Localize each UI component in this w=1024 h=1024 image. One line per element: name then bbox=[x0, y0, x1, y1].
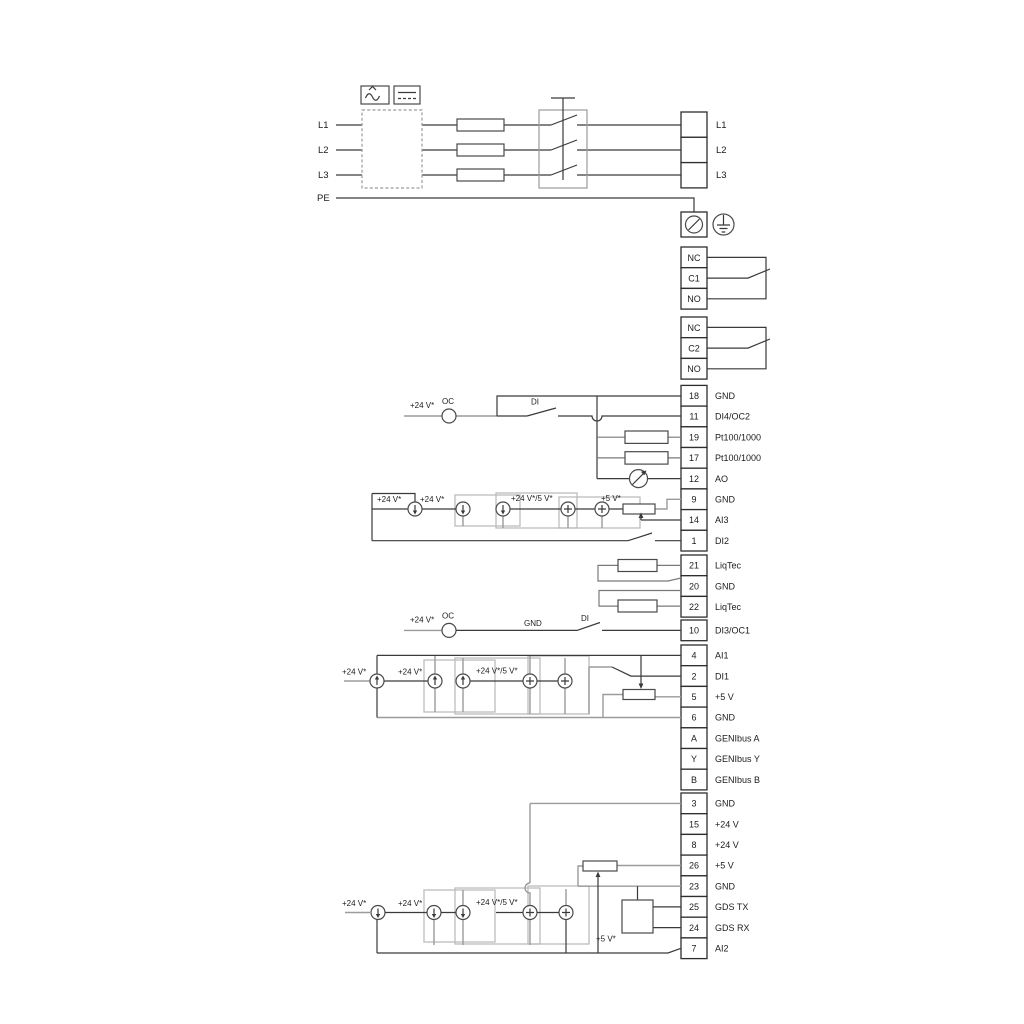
terminal-8-no: 8 bbox=[691, 840, 696, 850]
terminal-26-label: +5 V bbox=[715, 861, 734, 871]
terminal-10-no: 10 bbox=[689, 626, 699, 636]
oc-annotation: OC bbox=[442, 397, 454, 406]
terminal-4-no: 4 bbox=[691, 651, 696, 661]
terminal-21-no: 21 bbox=[689, 561, 699, 571]
terminal-7-label: AI2 bbox=[715, 944, 729, 954]
terminal-23-no: 23 bbox=[689, 881, 699, 891]
terminal-18-no: 18 bbox=[689, 391, 699, 401]
gnd-annotation: GND bbox=[524, 619, 542, 628]
terminal-20-no: 20 bbox=[689, 581, 699, 591]
group-stub-wires bbox=[344, 655, 681, 717]
terminal-7-no: 7 bbox=[691, 944, 696, 954]
ai2-source-group: +24 V* +24 V* +24 V*/5 V* +5 V* bbox=[342, 803, 681, 953]
v24v5-annotation: +24 V*/5 V* bbox=[511, 494, 553, 503]
v24-annotation: +24 V* bbox=[377, 495, 401, 504]
terminal-15-label: +24 V bbox=[715, 819, 739, 829]
terminal-a-label: GENIbus A bbox=[715, 733, 760, 743]
potentiometer-icon bbox=[623, 504, 655, 514]
relay2-contact-wiring bbox=[707, 327, 770, 368]
fuse-icon bbox=[457, 169, 504, 181]
di-annotation: DI bbox=[531, 398, 539, 407]
terminal-4-label: AI1 bbox=[715, 651, 729, 661]
terminal-strip-2: 21 20 22 LiqTec GND LiqTec bbox=[598, 555, 742, 617]
v24-annotation: +24 V* bbox=[398, 899, 422, 908]
terminal-11-no: 11 bbox=[689, 412, 698, 422]
terminal-22-label: LiqTec bbox=[715, 602, 742, 612]
terminal-l3 bbox=[681, 163, 707, 188]
wiring-diagram: L1 L2 L3 PE L1 L2 L3 bbox=[0, 0, 1024, 1024]
mains-in-l1-label: L1 bbox=[318, 120, 329, 131]
v5-annotation: +5 V* bbox=[596, 935, 616, 944]
option-frame bbox=[528, 656, 589, 714]
di3-wiring: +24 V* OC GND DI bbox=[404, 612, 681, 638]
pt100-resistor-icon bbox=[625, 431, 668, 443]
fuses bbox=[457, 119, 504, 181]
terminal-3-label: GND bbox=[715, 799, 736, 809]
main-switch-blades bbox=[551, 115, 577, 175]
terminal-3-no: 3 bbox=[691, 799, 696, 809]
oc-annotation: OC bbox=[442, 612, 454, 621]
v24-annotation: +24 V* bbox=[410, 616, 434, 625]
potentiometer-icon bbox=[583, 861, 617, 871]
terminal-a-no: A bbox=[691, 733, 697, 743]
terminal-25-label: GDS TX bbox=[715, 902, 748, 912]
terminal-strip-3: 10 4 2 5 6 A Y B DI3/OC1 AI1 DI1 +5 V GN… bbox=[681, 620, 760, 790]
open-collector-icon bbox=[442, 409, 456, 423]
relay2-block: NC C2 NO bbox=[681, 317, 770, 379]
mains-output-block: L1 L2 L3 bbox=[681, 112, 727, 188]
terminal-11-label: DI4/OC2 bbox=[715, 412, 750, 422]
terminal-15-no: 15 bbox=[689, 819, 699, 829]
terminal-5-no: 5 bbox=[691, 692, 696, 702]
relay1-no-label: NO bbox=[687, 294, 701, 304]
liqtec-resistor-icon bbox=[618, 560, 657, 572]
terminal-14-label: AI3 bbox=[715, 515, 729, 525]
terminal-strip-1: 18 11 19 17 12 9 14 1 GND DI4/OC2 Pt100/… bbox=[681, 385, 761, 551]
terminal-1-label: DI2 bbox=[715, 536, 729, 546]
v24-annotation: +24 V* bbox=[410, 401, 434, 410]
terminal-b-label: GENIbus B bbox=[715, 775, 760, 785]
terminal-l1 bbox=[681, 112, 707, 137]
terminal-26-no: 26 bbox=[689, 861, 699, 871]
terminal-12-label: AO bbox=[715, 474, 728, 484]
terminal-19-label: Pt100/1000 bbox=[715, 432, 761, 442]
terminal-9-no: 9 bbox=[691, 495, 696, 505]
terminal-2-label: DI1 bbox=[715, 671, 729, 681]
terminal-17-no: 17 bbox=[689, 453, 699, 463]
terminal-6-no: 6 bbox=[691, 713, 696, 723]
di3-switch-wire bbox=[456, 623, 681, 631]
pot-wiper-arrowhead bbox=[639, 684, 644, 690]
terminal-5-label: +5 V bbox=[715, 692, 734, 702]
pe-terminal bbox=[681, 212, 707, 237]
v24-annotation: +24 V* bbox=[398, 668, 422, 677]
dc-symbol-box bbox=[394, 86, 420, 104]
wiring-diagram-page: L1 L2 L3 PE L1 L2 L3 bbox=[0, 0, 1024, 1024]
mains-out-l1-label: L1 bbox=[716, 120, 727, 131]
frequency-converter-box bbox=[362, 110, 422, 188]
mains-input-section: L1 L2 L3 PE L1 L2 L3 bbox=[317, 86, 734, 237]
open-collector-icon bbox=[442, 623, 456, 637]
v24-annotation: +24 V* bbox=[342, 899, 366, 908]
relay2-nc-label: NC bbox=[688, 323, 701, 333]
v5-annotation: +5 V* bbox=[601, 494, 621, 503]
relay2-c2-label: C2 bbox=[688, 344, 700, 354]
relay1-nc-label: NC bbox=[688, 253, 701, 263]
mains-out-l2-label: L2 bbox=[716, 145, 727, 156]
fuse-icon bbox=[457, 144, 504, 156]
terminal-6-label: GND bbox=[715, 713, 736, 723]
terminal-23-label: GND bbox=[715, 881, 736, 891]
terminal-9-label: GND bbox=[715, 495, 736, 505]
potentiometer-icon bbox=[623, 690, 655, 700]
relay1-contact-wiring bbox=[707, 257, 770, 298]
pt100-resistor-icon bbox=[625, 452, 668, 464]
ai3-source-group: +24 V* +24 V* +24 V*/5 V* +5 V* bbox=[372, 493, 681, 541]
terminal-b-no: B bbox=[691, 775, 697, 785]
mains-in-l2-label: L2 bbox=[318, 145, 329, 156]
terminal-24-label: GDS RX bbox=[715, 923, 750, 933]
terminal-24-no: 24 bbox=[689, 923, 699, 933]
terminal-10-label: DI3/OC1 bbox=[715, 626, 750, 636]
liqtec-resistor-icon bbox=[618, 600, 657, 612]
terminal-strip-4: 3 15 8 26 23 25 24 7 GND +24 V +24 V +5 … bbox=[681, 793, 750, 959]
v24-annotation: +24 V* bbox=[342, 668, 366, 677]
mains-in-l3-label: L3 bbox=[318, 170, 329, 181]
pot-wiper-arrowhead bbox=[596, 872, 601, 878]
terminal-22-no: 22 bbox=[689, 602, 699, 612]
earth-symbol bbox=[713, 214, 734, 235]
relay2-no-label: NO bbox=[687, 364, 701, 374]
terminal-8-label: +24 V bbox=[715, 840, 739, 850]
relay1-c1-label: C1 bbox=[688, 274, 700, 284]
terminal-14-no: 14 bbox=[689, 515, 699, 525]
v24v5-annotation: +24 V*/5 V* bbox=[476, 898, 518, 907]
terminal-y-no: Y bbox=[691, 754, 697, 764]
v24-annotation: +24 V* bbox=[420, 495, 444, 504]
terminal-18-label: GND bbox=[715, 391, 736, 401]
terminal-y-label: GENIbus Y bbox=[715, 754, 760, 764]
gds-sensor-box bbox=[622, 900, 653, 933]
v24v5-annotation: +24 V*/5 V* bbox=[476, 667, 518, 676]
mains-in-pe-label: PE bbox=[317, 193, 330, 204]
ai1-source-group: +24 V* +24 V* +24 V*/5 V* bbox=[342, 655, 681, 717]
terminal-19-no: 19 bbox=[689, 432, 699, 442]
terminal-20-label: GND bbox=[715, 581, 736, 591]
di-annotation: DI bbox=[581, 614, 589, 623]
relay1-block: NC C1 NO bbox=[681, 247, 770, 309]
terminal-2-no: 2 bbox=[691, 671, 696, 681]
mains-out-l3-label: L3 bbox=[716, 170, 727, 181]
terminal-17-label: Pt100/1000 bbox=[715, 453, 761, 463]
mains-wires bbox=[336, 125, 694, 212]
strip1-wiring: +24 V* OC DI bbox=[404, 396, 681, 488]
terminal-25-no: 25 bbox=[689, 902, 699, 912]
terminal-l2 bbox=[681, 137, 707, 162]
fuse-icon bbox=[457, 119, 504, 131]
terminal-21-label: LiqTec bbox=[715, 561, 742, 571]
terminal-12-no: 12 bbox=[689, 474, 699, 484]
terminal-1-no: 1 bbox=[691, 536, 696, 546]
